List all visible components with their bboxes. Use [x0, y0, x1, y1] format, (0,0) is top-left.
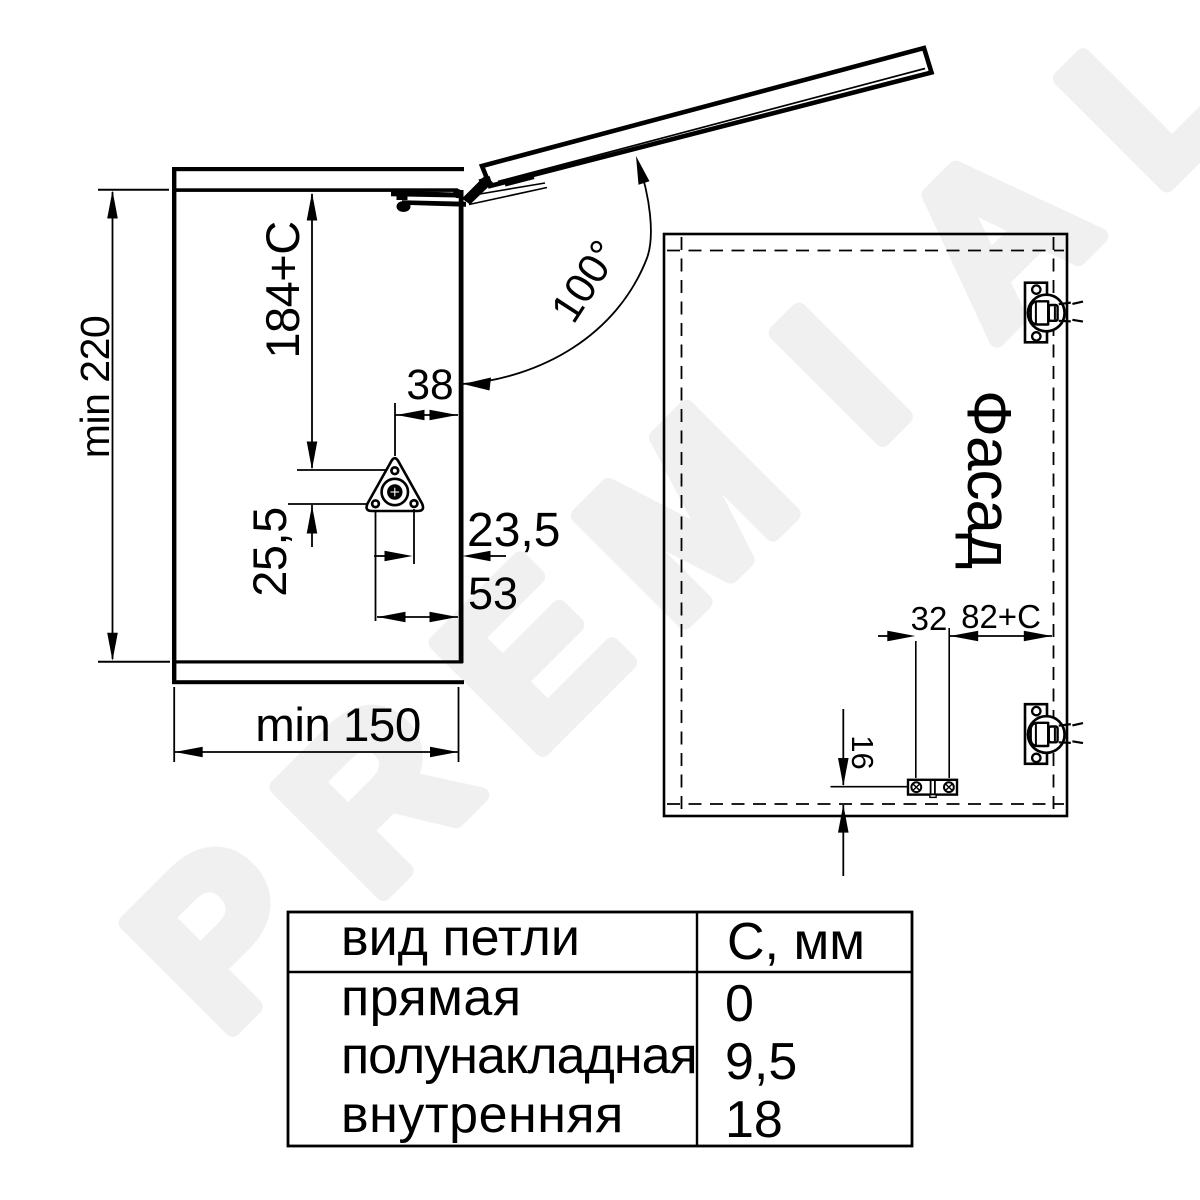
svg-text:min 220: min 220: [72, 316, 118, 458]
svg-text:18: 18: [725, 1091, 783, 1149]
svg-text:53: 53: [468, 568, 518, 619]
svg-text:32: 32: [911, 600, 948, 637]
svg-text:184+C: 184+C: [256, 221, 309, 358]
svg-text:16: 16: [845, 735, 880, 769]
svg-text:С, мм: С, мм: [727, 913, 865, 971]
svg-text:9,5: 9,5: [725, 1033, 797, 1091]
svg-text:min 150: min 150: [255, 699, 421, 752]
svg-text:полунакладная: полунакладная: [341, 1027, 697, 1085]
svg-text:вид петли: вид петли: [341, 909, 580, 967]
svg-text:23,5: 23,5: [467, 504, 560, 557]
svg-text:25,5: 25,5: [243, 507, 296, 596]
svg-text:38: 38: [406, 362, 453, 409]
svg-text:прямая: прямая: [341, 969, 521, 1027]
svg-text:внутренняя: внутренняя: [341, 1086, 624, 1144]
svg-text:Фасад: Фасад: [954, 390, 1023, 569]
svg-text:0: 0: [725, 975, 754, 1033]
svg-text:82+C: 82+C: [961, 598, 1041, 635]
